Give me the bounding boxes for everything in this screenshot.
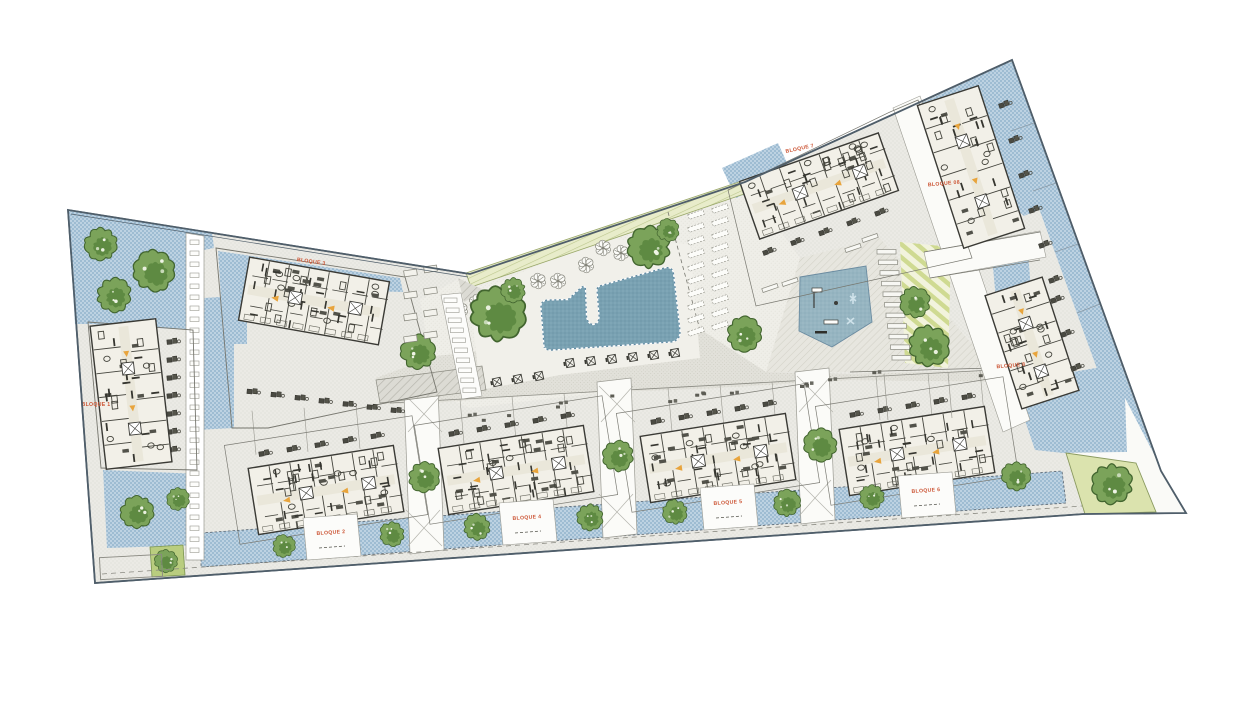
- svg-text:BLOQUE 1: BLOQUE 1: [82, 402, 111, 408]
